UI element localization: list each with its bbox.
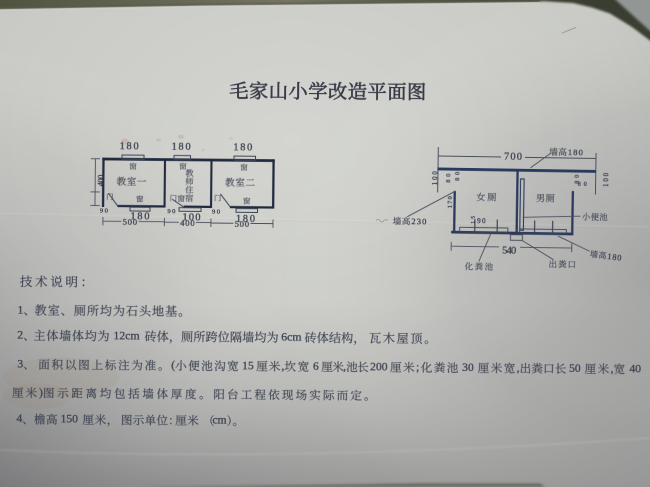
svg-text:1: 1 xyxy=(18,302,24,316)
svg-text:500: 500 xyxy=(123,217,138,227)
svg-text:400: 400 xyxy=(180,218,195,228)
svg-text:180: 180 xyxy=(607,252,622,263)
svg-text:700: 700 xyxy=(504,151,522,162)
svg-text:15: 15 xyxy=(242,359,254,372)
svg-text:180: 180 xyxy=(233,142,252,153)
svg-text:400: 400 xyxy=(96,175,105,187)
svg-text:,: , xyxy=(343,360,346,373)
svg-text:,: , xyxy=(611,362,614,375)
svg-text:12cm: 12cm xyxy=(113,328,139,342)
svg-text:170: 170 xyxy=(446,196,453,208)
svg-text:90: 90 xyxy=(212,208,221,215)
svg-text:): ) xyxy=(39,386,43,399)
svg-text:90: 90 xyxy=(477,217,486,225)
svg-text:cm: cm xyxy=(212,414,226,427)
svg-text:,: , xyxy=(517,361,520,374)
svg-text:40: 40 xyxy=(629,362,641,375)
svg-text:180: 180 xyxy=(172,142,191,153)
svg-text:30: 30 xyxy=(462,361,474,374)
svg-text:;: ; xyxy=(416,361,419,374)
svg-text:100: 100 xyxy=(602,172,610,187)
svg-text:500: 500 xyxy=(235,219,250,229)
svg-text:90: 90 xyxy=(100,207,109,214)
svg-text:230: 230 xyxy=(411,216,426,226)
svg-text:100: 100 xyxy=(431,171,439,186)
svg-text:3: 3 xyxy=(17,357,23,370)
svg-text:540: 540 xyxy=(502,246,516,257)
svg-text:,: , xyxy=(281,359,284,372)
svg-text:2: 2 xyxy=(17,328,23,342)
svg-text:150: 150 xyxy=(60,413,78,426)
svg-text:4: 4 xyxy=(16,412,22,425)
svg-text:90: 90 xyxy=(167,208,176,215)
svg-text:(: ( xyxy=(171,359,175,372)
svg-text:50: 50 xyxy=(569,362,581,375)
svg-text:6cm: 6cm xyxy=(281,330,301,344)
svg-text:6: 6 xyxy=(313,360,319,373)
svg-text:180: 180 xyxy=(568,147,583,157)
svg-text:200: 200 xyxy=(370,360,388,373)
